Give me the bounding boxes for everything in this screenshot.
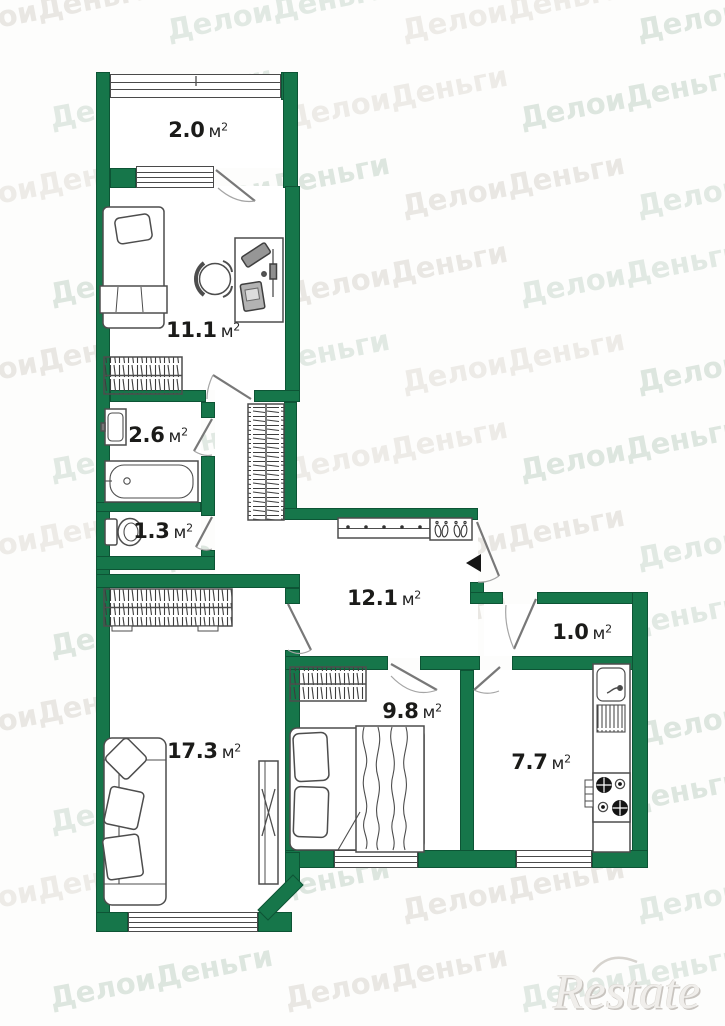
room-child: [110, 186, 285, 390]
wall-bedroom-top: [285, 656, 388, 670]
floor-plan: 2.0м2 11.1м2 2.6м2 1.3м2 12.1м2 1.0м2 7.…: [0, 0, 725, 1026]
logo-text: Restate: [553, 962, 700, 1020]
wall-wc-bottom: [96, 556, 215, 570]
room-label-living-room: 17.3м2: [167, 739, 241, 763]
wall-bed-kitchen-divider: [460, 670, 474, 852]
door-entrance: [477, 522, 499, 576]
wall-living-right-bottom-stub: [285, 852, 300, 884]
room-bedroom: [300, 670, 460, 850]
window-living-bottom: [128, 912, 258, 932]
wall-living-right-lower: [285, 650, 300, 852]
wall-hall-bottom-mid: [420, 656, 480, 670]
wall-storage-top-left: [470, 592, 503, 604]
window-balcony-top: [110, 74, 281, 98]
wall-living-bottom-right: [258, 912, 292, 932]
window-kitchen-bottom: [516, 850, 592, 868]
room-label-bathroom: 2.6м2: [128, 423, 188, 447]
wall-child-right: [285, 186, 300, 392]
room-label-wc: 1.3м2: [133, 519, 193, 543]
wall-bottom-mid: [418, 850, 516, 868]
wall-living-right-stub: [285, 588, 300, 604]
window-balcony-sill: [136, 166, 214, 188]
wall-balcony-sill: [110, 168, 136, 188]
wall-bottom-kitchen-right: [592, 850, 648, 868]
room-label-balcony: 2.0м2: [168, 118, 228, 142]
restate-logo: Restate: [545, 948, 725, 1026]
room-label-hallway: 12.1м2: [347, 586, 421, 610]
wall-living-top: [96, 574, 300, 588]
wall-child-bottom-right: [254, 390, 300, 402]
wall-living-bottom-left: [96, 912, 128, 932]
room-label-bedroom: 9.8м2: [382, 699, 442, 723]
wall-corridor-right: [284, 402, 297, 520]
wall-bath-right-b: [201, 456, 215, 516]
wall-right: [632, 592, 648, 854]
wall-child-bottom-left: [110, 390, 206, 402]
wall-hall-top: [283, 508, 478, 520]
room-label-child-room: 11.1м2: [166, 318, 240, 342]
room-label-kitchen: 7.7м2: [511, 750, 571, 774]
wall-kitchen-top: [512, 656, 648, 670]
wall-balcony-right: [283, 72, 298, 188]
room-bathroom: [110, 402, 201, 502]
room-label-storage: 1.0м2: [552, 620, 612, 644]
wall-bath-wc-divider: [96, 502, 201, 512]
wall-bath-right-a: [201, 402, 215, 418]
floor-plan-image: ДелоиДеньгиДелоиДеньгиДелоиДеньгиДелоиДе…: [0, 0, 725, 1026]
window-bedroom-bottom: [334, 850, 418, 868]
